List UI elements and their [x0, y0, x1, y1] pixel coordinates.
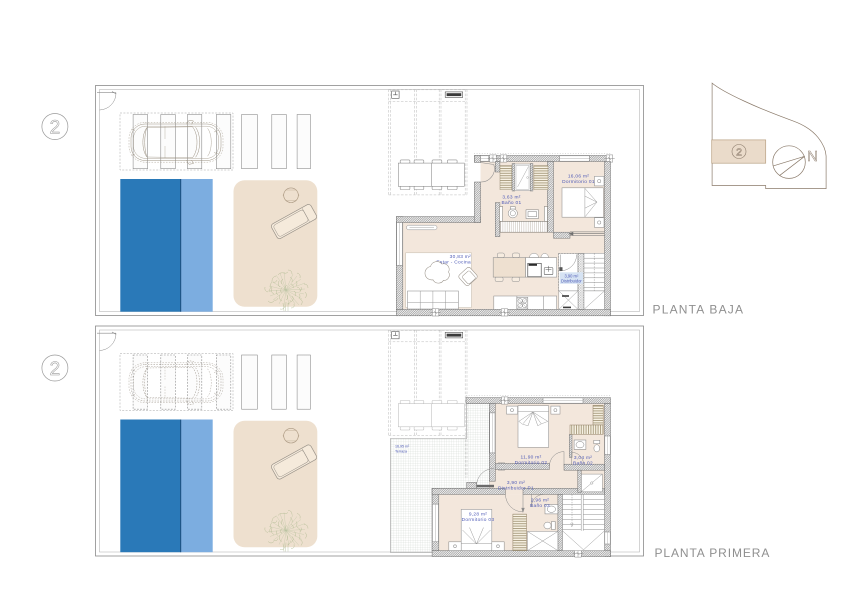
svg-text:Baño 02: Baño 02 — [573, 461, 593, 467]
svg-text:Dormitorio 02: Dormitorio 02 — [515, 460, 548, 466]
svg-text:16,95 m²: 16,95 m² — [395, 445, 410, 449]
svg-text:3,04 m²: 3,04 m² — [574, 455, 592, 461]
svg-text:Dormitorio 03: Dormitorio 03 — [462, 517, 495, 523]
svg-text:PLANTA PRIMERA: PLANTA PRIMERA — [655, 546, 771, 560]
svg-text:Dormitorio 01: Dormitorio 01 — [562, 179, 595, 185]
svg-text:9,28 m²: 9,28 m² — [469, 512, 487, 518]
svg-text:30,83 m²: 30,83 m² — [450, 254, 471, 260]
svg-text:2: 2 — [736, 146, 742, 158]
svg-text:PLANTA BAJA: PLANTA BAJA — [653, 303, 745, 317]
svg-text:Distribuidor: Distribuidor — [561, 278, 582, 283]
svg-text:Terraza: Terraza — [395, 450, 407, 454]
svg-text:Baño 03: Baño 03 — [530, 503, 550, 509]
svg-text:2,96 m²: 2,96 m² — [531, 498, 549, 504]
svg-text:N: N — [807, 148, 818, 165]
svg-text:3,63 m²: 3,63 m² — [502, 195, 520, 201]
svg-text:11,90 m²: 11,90 m² — [521, 455, 542, 461]
svg-text:16,06 m²: 16,06 m² — [568, 174, 589, 180]
svg-text:Distribuidor P1: Distribuidor P1 — [498, 486, 534, 492]
svg-text:3,90 m²: 3,90 m² — [507, 480, 525, 486]
svg-text:Baño 01: Baño 01 — [502, 200, 522, 206]
